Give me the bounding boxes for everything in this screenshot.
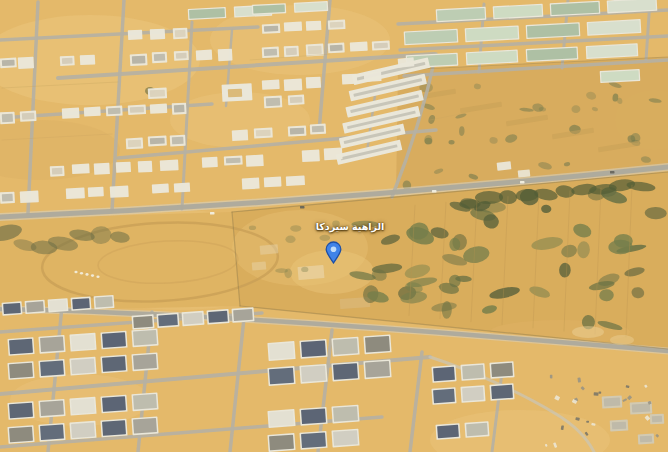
location-pin-icon[interactable] bbox=[325, 241, 342, 264]
map-viewport[interactable]: الزاهية سيردكا bbox=[0, 0, 668, 452]
place-label[interactable]: الزاهية سيردكا bbox=[300, 221, 400, 232]
